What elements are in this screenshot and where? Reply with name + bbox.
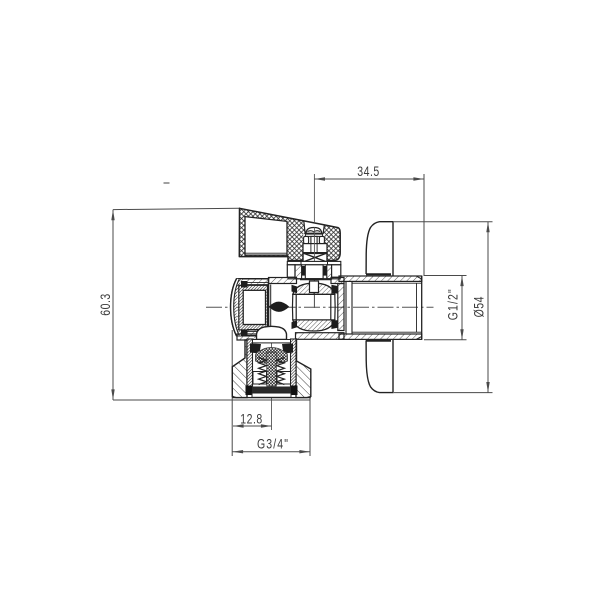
svg-text:G3/4": G3/4" [257, 436, 289, 452]
svg-text:Ø54: Ø54 [471, 296, 487, 317]
svg-text:G1/2": G1/2" [445, 288, 461, 320]
svg-text:12.8: 12.8 [240, 411, 263, 427]
svg-text:34.5: 34.5 [357, 164, 380, 180]
svg-text:60.3: 60.3 [98, 293, 114, 316]
